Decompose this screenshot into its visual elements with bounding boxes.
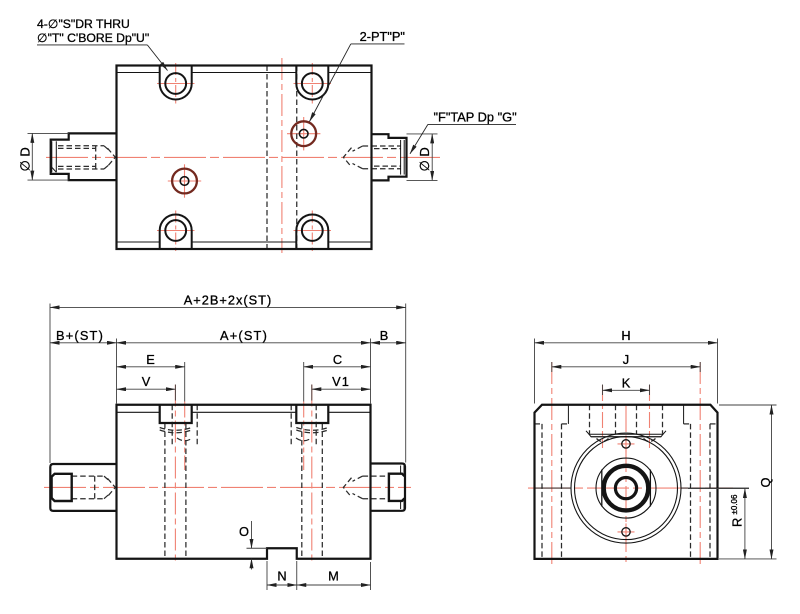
svg-text:N: N [277,569,286,584]
svg-text:K: K [622,375,631,390]
svg-text:∅ D: ∅ D [417,147,432,171]
svg-text:±0.06: ±0.06 [730,494,739,515]
svg-text:V: V [142,374,151,389]
svg-text:"F"TAP Dp "G": "F"TAP Dp "G" [434,110,517,125]
svg-text:∅"T" C'BORE Dp"U": ∅"T" C'BORE Dp"U" [37,31,149,45]
svg-text:∅ D: ∅ D [18,147,33,171]
svg-text:E: E [146,352,155,367]
svg-text:M: M [328,569,339,584]
svg-text:B: B [380,328,389,343]
svg-text:B+(ST): B+(ST) [56,328,104,343]
svg-text:2-PT"P": 2-PT"P" [360,29,405,44]
svg-text:R: R [730,518,745,527]
svg-text:O: O [239,524,249,539]
svg-text:C: C [333,352,342,367]
svg-text:J: J [623,352,629,367]
svg-text:A+2B+2x(ST): A+2B+2x(ST) [184,293,273,308]
svg-text:V1: V1 [332,374,350,389]
svg-text:4-∅"S"DR THRU: 4-∅"S"DR THRU [37,17,130,31]
svg-text:A+(ST): A+(ST) [220,328,268,343]
svg-text:H: H [621,328,630,343]
svg-text:Q: Q [758,478,773,488]
